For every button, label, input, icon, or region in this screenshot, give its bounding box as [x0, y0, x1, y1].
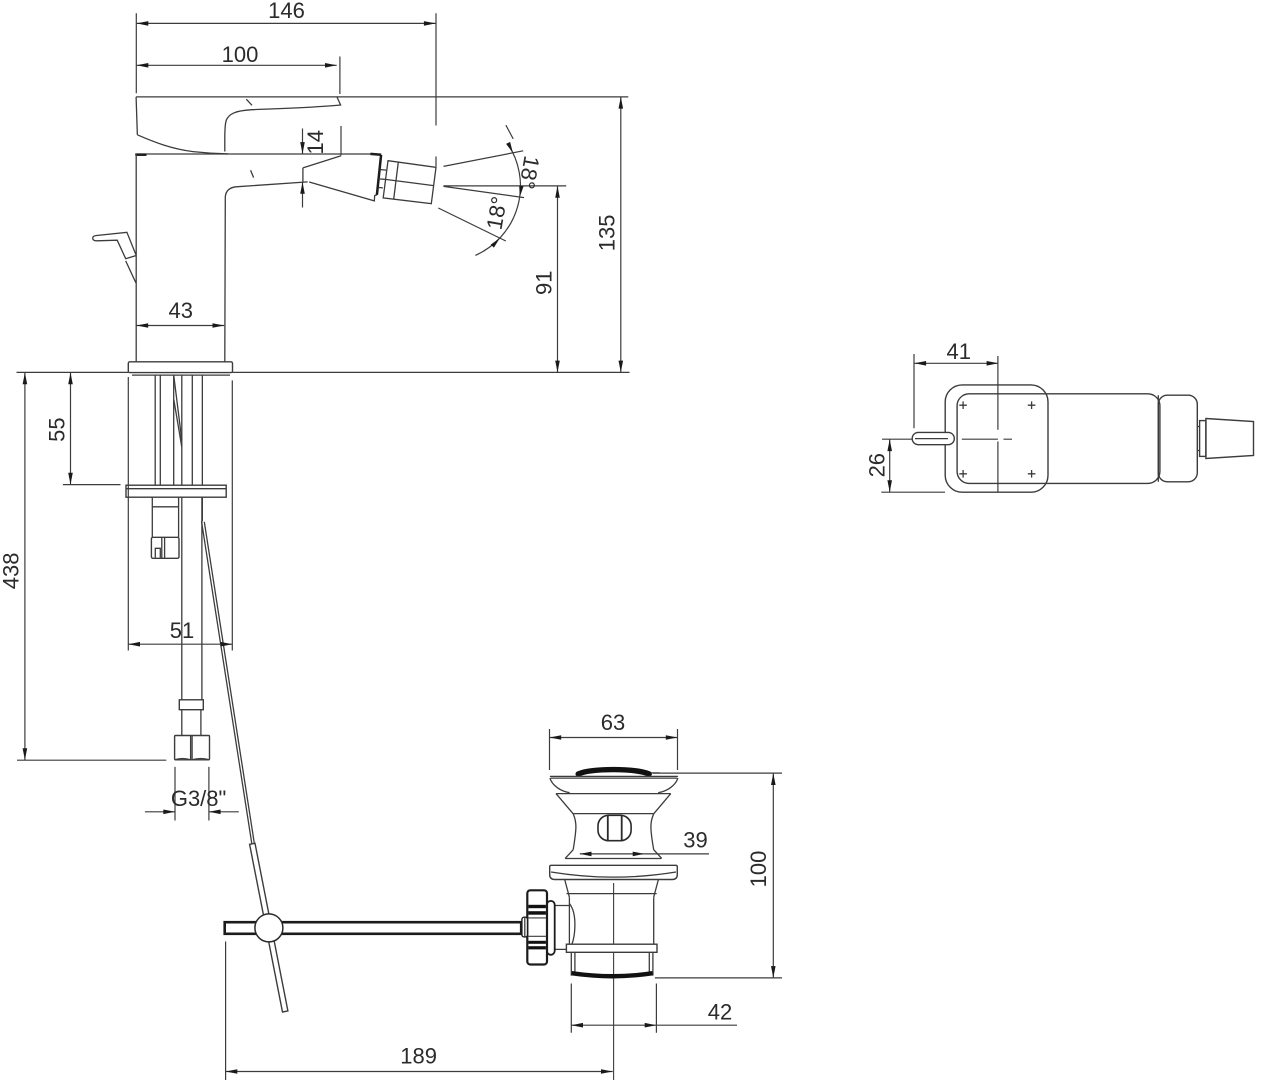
svg-text:41: 41 — [947, 339, 971, 364]
svg-text:26: 26 — [865, 453, 890, 477]
svg-text:91: 91 — [532, 271, 557, 295]
svg-text:G3/8": G3/8" — [171, 786, 227, 811]
svg-text:39: 39 — [683, 828, 707, 853]
svg-text:100: 100 — [222, 42, 259, 67]
svg-text:51: 51 — [170, 618, 194, 643]
svg-text:100: 100 — [746, 851, 771, 888]
svg-text:438: 438 — [0, 553, 24, 590]
svg-text:63: 63 — [601, 710, 625, 735]
svg-text:14: 14 — [303, 130, 328, 154]
svg-text:146: 146 — [268, 0, 305, 23]
svg-text:189: 189 — [400, 1044, 437, 1069]
svg-text:55: 55 — [45, 417, 70, 441]
svg-text:43: 43 — [168, 298, 192, 323]
svg-text:135: 135 — [594, 215, 619, 252]
svg-text:42: 42 — [708, 1000, 732, 1025]
